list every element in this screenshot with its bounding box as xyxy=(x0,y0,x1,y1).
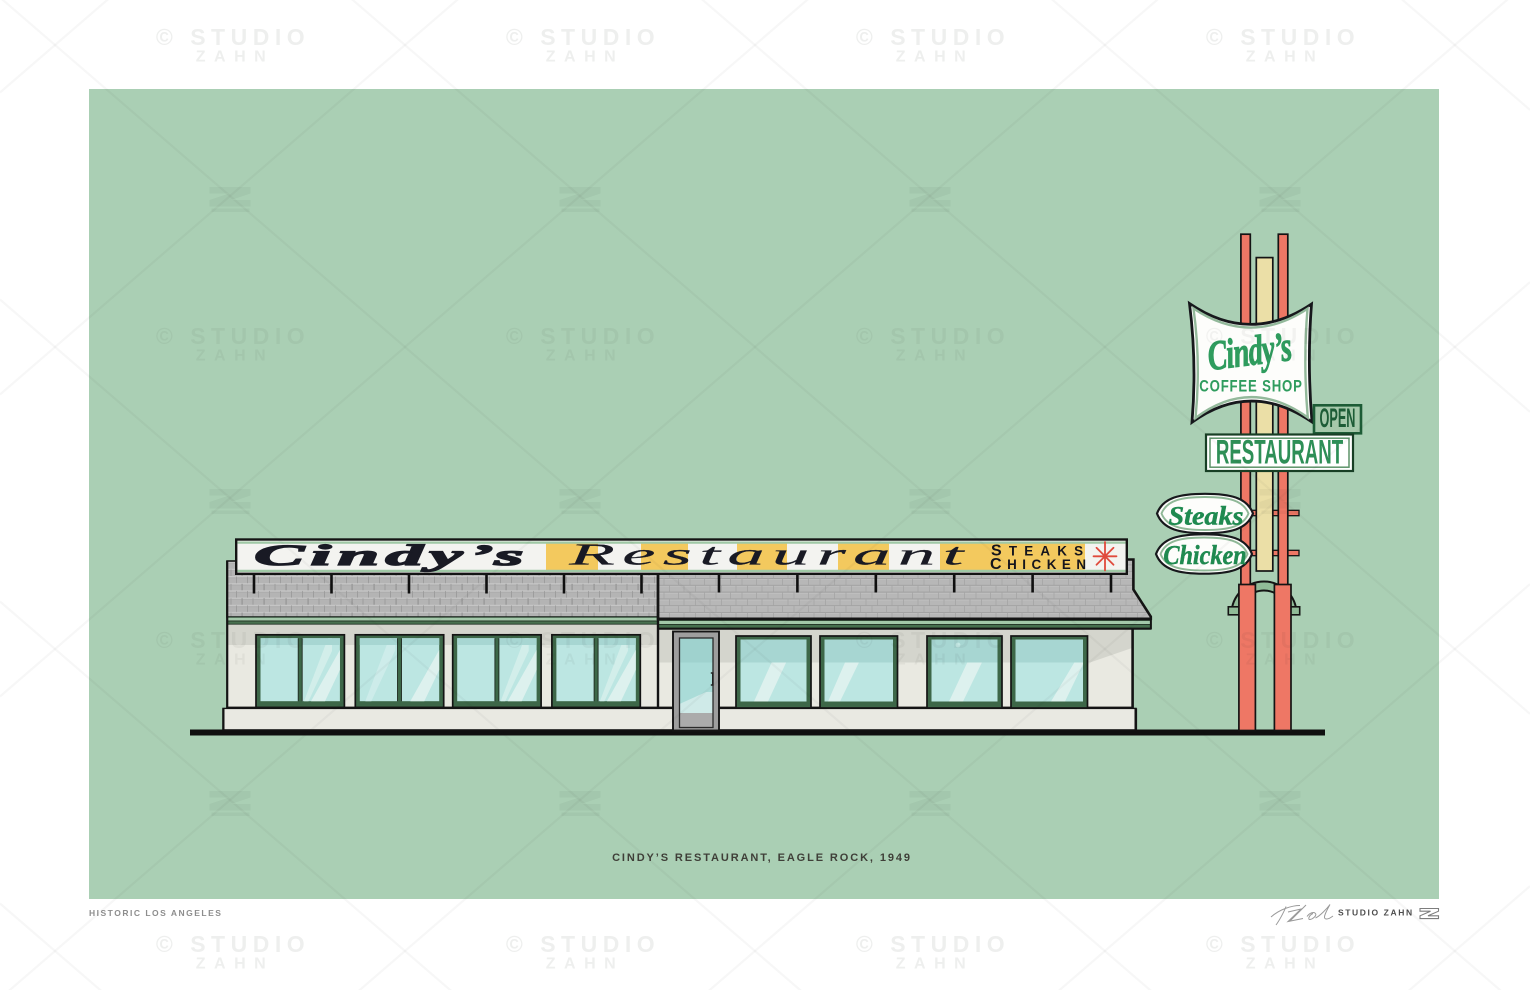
svg-text:ZAHN: ZAHN xyxy=(546,652,624,669)
svg-text:ZAHN: ZAHN xyxy=(896,652,974,669)
svg-text:© STUDIO: © STUDIO xyxy=(506,24,660,50)
svg-text:ZAHN: ZAHN xyxy=(1246,652,1324,669)
svg-text:ZAHN: ZAHN xyxy=(546,348,624,365)
svg-text:ZAHN: ZAHN xyxy=(196,956,274,973)
svg-text:ZAHN: ZAHN xyxy=(196,348,274,365)
svg-text:© STUDIO: © STUDIO xyxy=(156,24,310,50)
svg-text:© STUDIO: © STUDIO xyxy=(1206,323,1360,349)
svg-text:Restaurant: Restaurant xyxy=(568,538,971,572)
svg-text:COFFEE SHOP: COFFEE SHOP xyxy=(1199,377,1302,396)
svg-text:© STUDIO: © STUDIO xyxy=(856,931,1010,957)
svg-text:© STUDIO: © STUDIO xyxy=(1206,931,1360,957)
svg-text:ZAHN: ZAHN xyxy=(196,652,274,669)
svg-text:© STUDIO: © STUDIO xyxy=(506,627,660,653)
svg-text:Steaks: Steaks xyxy=(1169,501,1244,530)
svg-text:Chicken: Chicken xyxy=(1163,540,1246,571)
svg-text:© STUDIO: © STUDIO xyxy=(506,931,660,957)
svg-text:© STUDIO: © STUDIO xyxy=(856,24,1010,50)
svg-text:ZAHN: ZAHN xyxy=(896,49,974,66)
svg-text:© STUDIO: © STUDIO xyxy=(1206,627,1360,653)
svg-text:ZAHN: ZAHN xyxy=(196,49,274,66)
svg-text:HISTORIC LOS ANGELES: HISTORIC LOS ANGELES xyxy=(89,908,222,918)
svg-text:© STUDIO: © STUDIO xyxy=(1206,24,1360,50)
svg-text:ZAHN: ZAHN xyxy=(896,348,974,365)
svg-text:ZAHN: ZAHN xyxy=(896,956,974,973)
svg-text:© STUDIO: © STUDIO xyxy=(506,323,660,349)
svg-text:ZAHN: ZAHN xyxy=(546,956,624,973)
svg-text:© STUDIO: © STUDIO xyxy=(856,323,1010,349)
svg-text:© STUDIO: © STUDIO xyxy=(156,931,310,957)
svg-text:ZAHN: ZAHN xyxy=(1246,49,1324,66)
svg-text:© STUDIO: © STUDIO xyxy=(156,627,310,653)
svg-text:ZAHN: ZAHN xyxy=(546,49,624,66)
svg-text:© STUDIO: © STUDIO xyxy=(856,627,1010,653)
svg-text:OPEN: OPEN xyxy=(1320,404,1356,433)
svg-text:RESTAURANT: RESTAURANT xyxy=(1216,433,1344,471)
svg-text:© STUDIO: © STUDIO xyxy=(156,323,310,349)
svg-text:ZAHN: ZAHN xyxy=(1246,348,1324,365)
svg-text:ZAHN: ZAHN xyxy=(1246,956,1324,973)
svg-text:STUDIO ZAHN: STUDIO ZAHN xyxy=(1338,908,1414,918)
